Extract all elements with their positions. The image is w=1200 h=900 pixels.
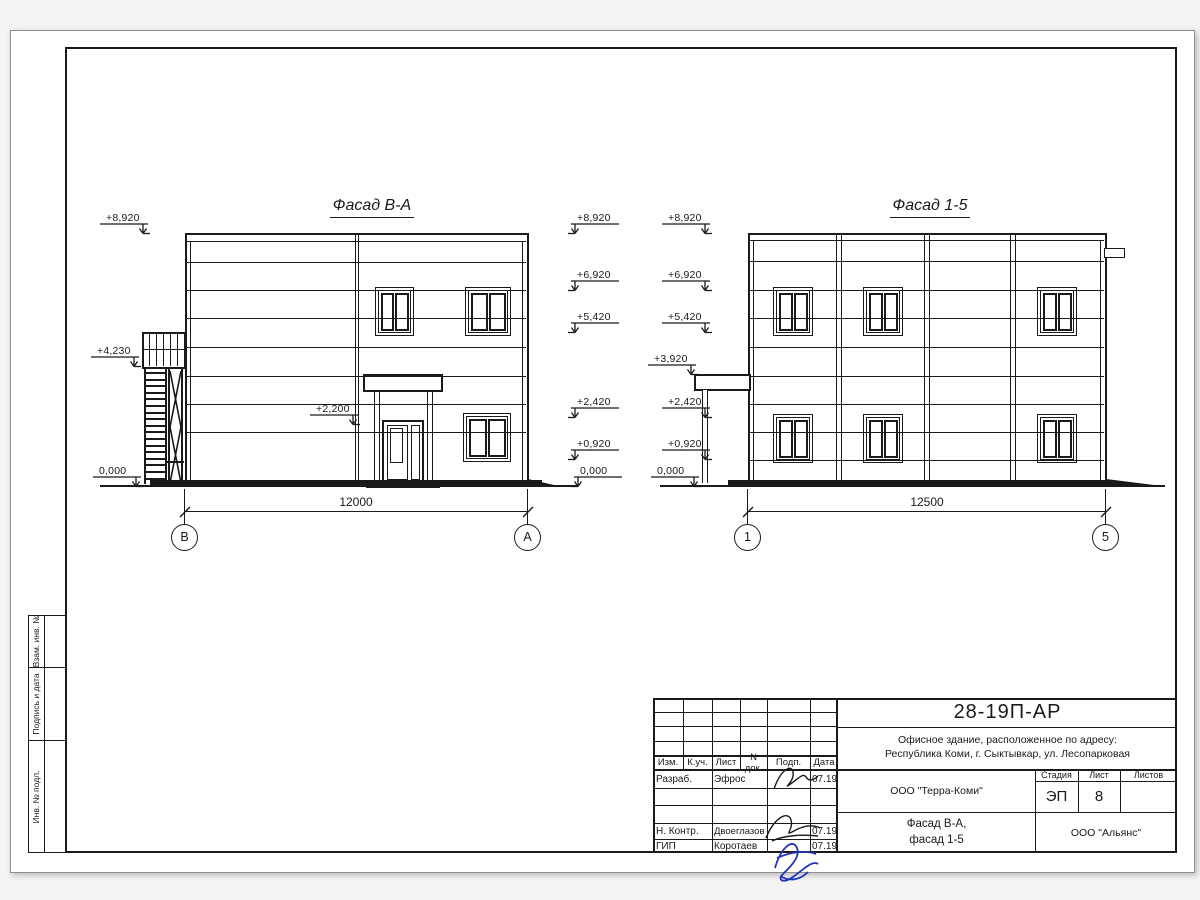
elevation-label: +0,920 — [668, 438, 702, 450]
elevation-label: +3,920 — [654, 353, 688, 365]
line — [750, 404, 1104, 405]
facade-mullion — [1010, 235, 1016, 481]
elevation-label: 0,000 — [657, 465, 684, 477]
line — [187, 376, 526, 377]
doc-number: 28-19П-АР — [838, 698, 1177, 727]
facade-right-title: Фасад 1-5 — [876, 197, 984, 218]
elevation-label: +8,920 — [668, 212, 702, 224]
line — [522, 241, 523, 481]
line — [146, 464, 165, 466]
line — [750, 432, 1104, 433]
axis-bubble-1: 1 — [734, 524, 761, 551]
canopy-post-left — [374, 392, 380, 482]
line — [146, 392, 165, 394]
margin-label: Взам. инв. № — [31, 615, 41, 668]
elevation-label: +2,420 — [577, 396, 611, 408]
line — [750, 460, 1104, 461]
col-izm: Изм. — [653, 755, 683, 770]
line — [836, 698, 838, 853]
line — [527, 489, 528, 525]
row-date: 07.19 — [812, 770, 838, 788]
line — [167, 461, 184, 463]
line — [146, 385, 165, 387]
line — [653, 741, 838, 742]
elevation-label: +2,420 — [668, 396, 702, 408]
axis-bubble-A: А — [514, 524, 541, 551]
line — [146, 398, 165, 400]
line — [750, 347, 1104, 348]
col-podp: Подп. — [767, 755, 810, 770]
line — [653, 712, 838, 713]
line — [1120, 769, 1121, 812]
row-name: Двоеглазов — [714, 823, 767, 839]
line — [750, 240, 1104, 241]
line — [28, 667, 65, 668]
line — [653, 698, 1177, 700]
line — [28, 852, 65, 853]
line — [146, 438, 165, 440]
elevation-label: 0,000 — [99, 465, 126, 477]
drain-outlet — [1104, 248, 1125, 258]
door-side-leaf — [411, 425, 420, 480]
window — [465, 287, 511, 336]
window — [1037, 414, 1077, 463]
line — [28, 740, 65, 741]
line — [660, 485, 1165, 487]
line — [1035, 781, 1177, 782]
line — [810, 698, 811, 853]
dimension-value: 12000 — [306, 495, 406, 509]
line — [653, 769, 1177, 771]
line — [146, 451, 165, 453]
margin-label: Подпись и дата — [31, 673, 41, 734]
side-canopy — [694, 374, 751, 391]
row-role: Разраб. — [656, 770, 711, 788]
line — [28, 615, 29, 853]
line — [750, 376, 1104, 377]
dimension-value: 12500 — [877, 495, 977, 509]
stage-value: ЭП — [1035, 781, 1078, 812]
line — [740, 698, 741, 770]
entrance-door — [382, 420, 424, 485]
line — [748, 511, 1106, 512]
elevation-label: +4,230 — [97, 345, 131, 357]
line — [358, 235, 359, 481]
row-role: ГИП — [656, 839, 711, 853]
line — [187, 262, 526, 263]
window — [375, 287, 414, 336]
line — [1100, 240, 1101, 481]
row-name: Коротаев — [714, 839, 767, 853]
line — [146, 372, 165, 374]
axis-bubble-B: В — [171, 524, 198, 551]
door-leaf — [387, 425, 408, 480]
elevation-label: 0,000 — [580, 465, 607, 477]
line — [181, 368, 183, 484]
row-date: 07.19 — [812, 839, 838, 853]
elevation-label: +5,420 — [577, 311, 611, 323]
sheet-number: 8 — [1078, 781, 1120, 812]
col-data: Дата — [810, 755, 838, 770]
line — [163, 334, 164, 366]
line — [838, 727, 1177, 728]
line — [100, 485, 578, 487]
line — [187, 290, 526, 291]
axis-bubble-5: 5 — [1092, 524, 1119, 551]
row-name: Эфрос — [714, 770, 766, 788]
line — [146, 379, 165, 381]
line — [185, 511, 528, 512]
line — [1078, 769, 1079, 812]
line — [683, 698, 684, 770]
margin-cell: Подпись и дата — [28, 667, 44, 740]
elevation-label: +2,200 — [316, 403, 350, 415]
line — [750, 290, 1104, 291]
line — [146, 471, 165, 473]
canopy-post-right — [427, 392, 433, 482]
line — [187, 318, 526, 319]
org-name: ООО "Терра-Коми" — [838, 769, 1035, 812]
line — [747, 489, 748, 525]
line — [184, 489, 185, 525]
line — [653, 755, 838, 757]
window — [863, 287, 903, 336]
facade-mullion — [836, 235, 842, 481]
elevation-label: +8,920 — [106, 212, 140, 224]
line — [168, 368, 170, 484]
line — [712, 698, 713, 853]
elevation-label: +8,920 — [577, 212, 611, 224]
line — [653, 805, 838, 806]
row-role: Н. Контр. — [656, 823, 711, 839]
line — [146, 478, 165, 480]
line — [149, 334, 150, 366]
col-list: Лист — [712, 755, 740, 770]
project-address: Офисное здание, расположенное по адресу:… — [838, 727, 1177, 769]
elevation-label: +5,420 — [668, 311, 702, 323]
window — [463, 413, 511, 462]
facade-mullion — [924, 235, 930, 481]
margin-label: Инв. № подл. — [31, 770, 41, 823]
contractor-name: ООО "Альянс" — [1035, 812, 1177, 853]
elevation-label: +6,920 — [668, 269, 702, 281]
line — [750, 318, 1104, 319]
line — [187, 432, 526, 433]
line — [177, 334, 178, 366]
line — [146, 418, 165, 420]
line — [146, 431, 165, 433]
line — [838, 812, 1177, 813]
window — [773, 287, 813, 336]
line — [653, 698, 655, 853]
line — [44, 615, 45, 853]
line — [653, 823, 838, 824]
line — [190, 241, 191, 481]
window — [773, 414, 813, 463]
line — [187, 404, 526, 405]
line — [165, 368, 167, 484]
line — [767, 698, 768, 853]
line — [653, 788, 838, 789]
side-canopy-post — [702, 390, 708, 483]
line — [366, 484, 440, 488]
line — [144, 349, 184, 350]
line — [1105, 489, 1106, 525]
line — [753, 240, 754, 481]
line — [355, 235, 356, 481]
line — [146, 412, 165, 414]
margin-cell: Инв. № подл. — [28, 740, 44, 853]
elevation-label: +0,920 — [577, 438, 611, 450]
line — [156, 334, 157, 366]
line — [146, 458, 165, 460]
line — [146, 405, 165, 407]
drawing-sheet: Фасад В-А Фасад 1-5 12000 12500 В А 1 5 … — [0, 0, 1200, 900]
window — [1037, 287, 1077, 336]
line — [28, 615, 65, 616]
elevation-label: +6,920 — [577, 269, 611, 281]
margin-cell: Взам. инв. № — [28, 615, 44, 667]
line — [146, 445, 165, 447]
window — [863, 414, 903, 463]
line — [653, 726, 838, 727]
line — [146, 425, 165, 427]
line — [750, 261, 1104, 262]
col-kuch: К.уч. — [683, 755, 712, 770]
sheet-title: Фасад В-А, фасад 1-5 — [838, 812, 1035, 853]
facade-left-title: Фасад В-А — [308, 197, 436, 218]
door-glass — [390, 428, 403, 463]
col-ndok: N док. — [740, 755, 767, 770]
row-date: 07.19 — [812, 823, 838, 839]
line — [187, 347, 526, 348]
line — [653, 839, 838, 840]
line — [170, 334, 171, 366]
line — [187, 241, 526, 242]
